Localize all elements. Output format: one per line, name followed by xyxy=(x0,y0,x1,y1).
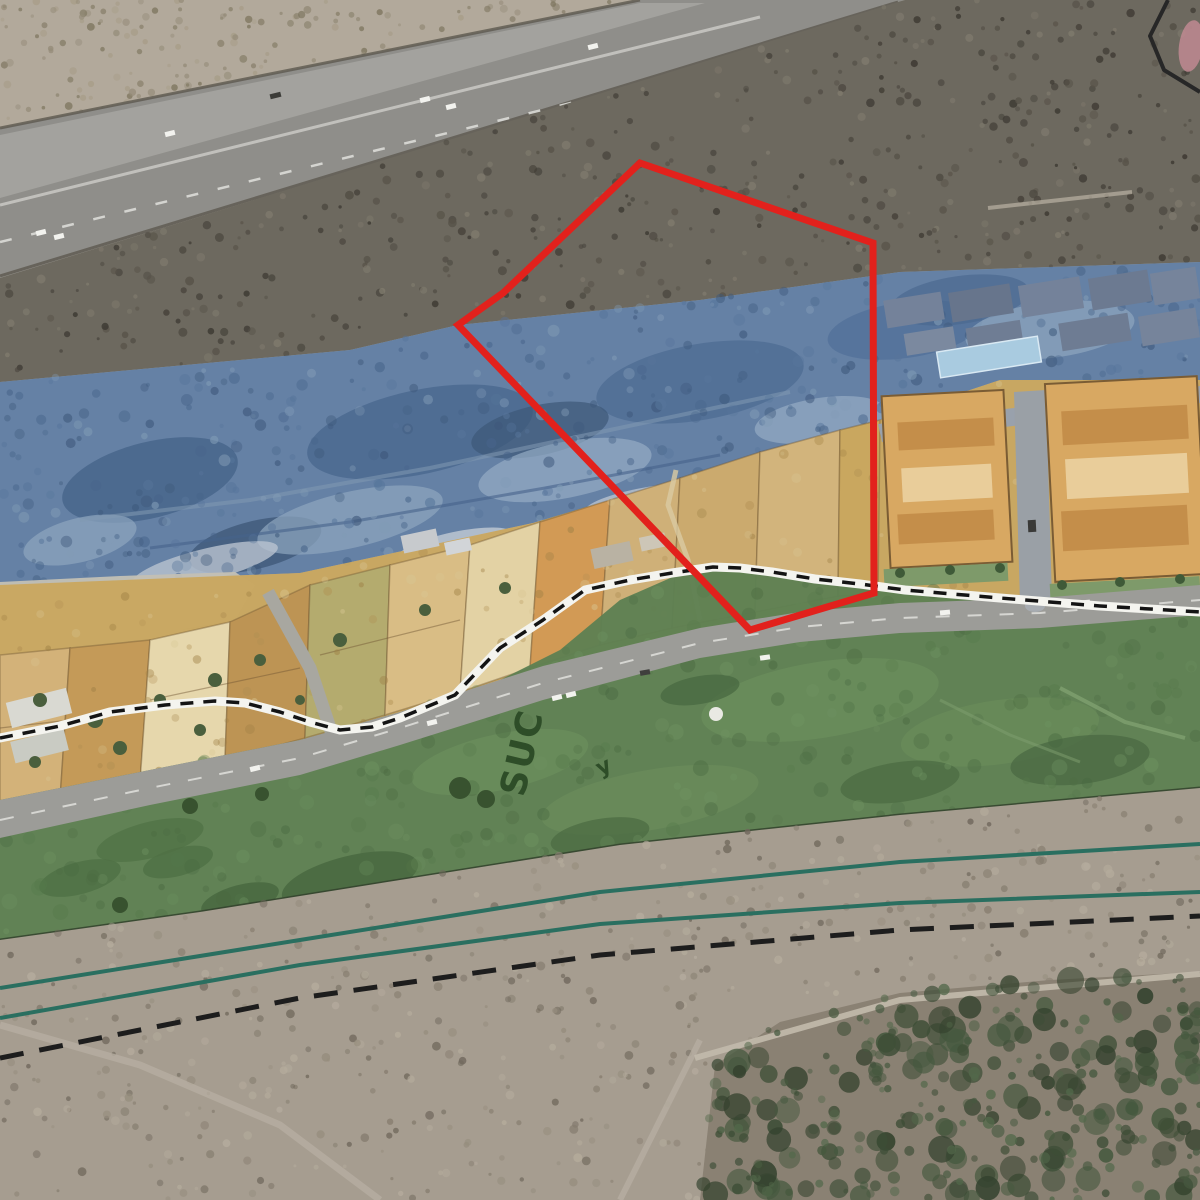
map-viewport[interactable]: SUCy xyxy=(0,0,1200,1200)
farm-tree xyxy=(33,693,47,707)
field-tree xyxy=(477,790,495,808)
street-tree xyxy=(1115,577,1125,587)
field-tree xyxy=(182,798,198,814)
farm-tree xyxy=(254,654,266,666)
farm-tree xyxy=(419,604,431,616)
apartment-courtyard xyxy=(901,464,993,503)
street-tree xyxy=(945,565,955,575)
farm-tree xyxy=(113,741,127,755)
street-tree xyxy=(1057,580,1067,590)
field-tree xyxy=(112,897,128,913)
apartment-courtyard xyxy=(897,510,994,545)
farm-parcel xyxy=(305,565,390,738)
field-tree xyxy=(255,787,269,801)
street-tree xyxy=(895,568,905,578)
farm-tree xyxy=(29,756,41,768)
farm-tree xyxy=(208,673,222,687)
field-marker-dot xyxy=(709,707,723,721)
apartment-courtyard xyxy=(1061,505,1189,552)
farm-tree xyxy=(499,582,511,594)
apartment-courtyard xyxy=(1065,453,1189,499)
street-tree xyxy=(1175,574,1185,584)
field-tree xyxy=(449,777,471,799)
farm-tree xyxy=(194,724,206,736)
street-car xyxy=(1028,520,1037,532)
street-tree xyxy=(995,563,1005,573)
map-canvas: SUCy xyxy=(0,0,1200,1200)
farm-tree xyxy=(333,633,347,647)
vehicle xyxy=(940,610,950,616)
apartment-courtyard xyxy=(1061,405,1189,446)
farm-tree xyxy=(295,695,305,705)
apartment-courtyard xyxy=(897,418,994,451)
